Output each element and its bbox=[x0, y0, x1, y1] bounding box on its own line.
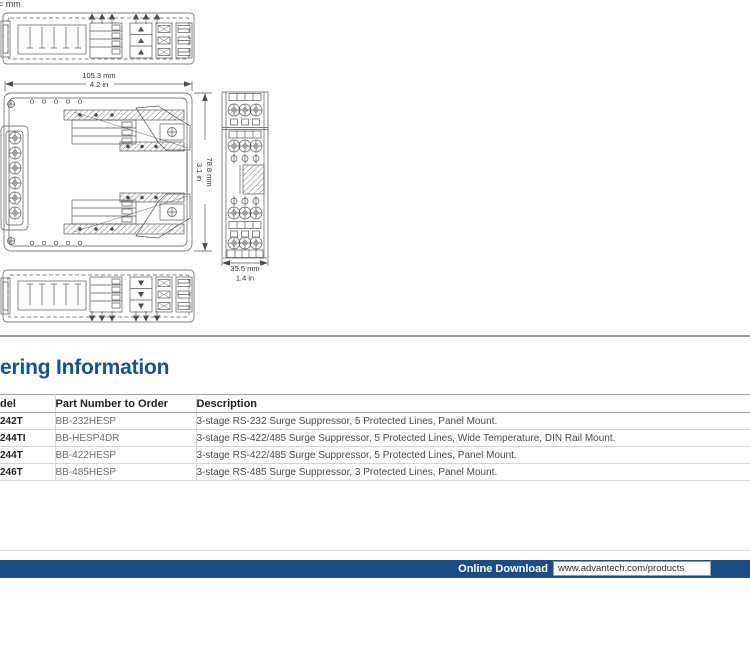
cell-description: 3-stage RS-422/485 Surge Suppressor, 5 P… bbox=[196, 447, 750, 464]
cell-model: 244TI bbox=[0, 430, 55, 447]
header-model: del bbox=[0, 395, 55, 413]
cell-model: 246T bbox=[0, 464, 55, 481]
cell-part: BB-485HESP bbox=[55, 464, 196, 481]
top-view-drawing bbox=[1, 13, 194, 64]
ordering-table: del Part Number to Order Description 242… bbox=[0, 394, 750, 481]
cell-part: BB-HESP4DR bbox=[55, 430, 196, 447]
datasheet-page: = mm bbox=[0, 0, 750, 650]
plan-view-drawing bbox=[1, 93, 192, 251]
table-header-row: del Part Number to Order Description bbox=[0, 395, 750, 413]
cell-model: 244T bbox=[0, 447, 55, 464]
depth-label-in: 1.4 in bbox=[236, 274, 254, 283]
table-row: 246T BB-485HESP 3-stage RS-485 Surge Sup… bbox=[0, 464, 750, 481]
cell-part: BB-232HESP bbox=[55, 413, 196, 430]
table-row: 242T BB-232HESP 3-stage RS-232 Surge Sup… bbox=[0, 413, 750, 430]
bottom-view-drawing bbox=[1, 270, 194, 322]
width-label-in: 4.2 in bbox=[90, 80, 108, 89]
cell-description: 3-stage RS-232 Surge Suppressor, 5 Prote… bbox=[196, 413, 750, 430]
table-row: 244TI BB-HESP4DR 3-stage RS-422/485 Surg… bbox=[0, 430, 750, 447]
download-url-box[interactable]: www.advantech.com/products bbox=[553, 561, 711, 576]
header-part-number: Part Number to Order bbox=[55, 395, 196, 413]
footer-separator-line bbox=[0, 550, 750, 551]
cell-part: BB-422HESP bbox=[55, 447, 196, 464]
ordering-heading: ering Information bbox=[0, 356, 169, 380]
footer-bar: Online Download www.advantech.com/produc… bbox=[0, 560, 750, 578]
depth-label-mm: 35.5 mm bbox=[230, 264, 259, 273]
online-download-label: Online Download bbox=[330, 560, 548, 578]
front-view-drawing bbox=[222, 92, 268, 258]
header-description: Description bbox=[196, 395, 750, 413]
section-divider bbox=[0, 335, 750, 337]
table-row: 244T BB-422HESP 3-stage RS-422/485 Surge… bbox=[0, 447, 750, 464]
depth-dimension: 35.5 mm 1.4 in bbox=[222, 259, 268, 283]
cell-description: 3-stage RS-485 Surge Suppressor, 3 Prote… bbox=[196, 464, 750, 481]
width-label-mm: 105.3 mm bbox=[82, 71, 115, 80]
height-label-mm: 78.8 mm bbox=[205, 157, 214, 186]
download-url-text[interactable]: www.advantech.com/products bbox=[554, 562, 710, 575]
technical-drawing: 105.3 mm 4.2 in 78.8 mm 3.1 in bbox=[0, 0, 300, 335]
height-label-in: 3.1 in bbox=[195, 163, 204, 181]
width-dimension: 105.3 mm 4.2 in bbox=[5, 71, 192, 91]
height-dimension: 78.8 mm 3.1 in bbox=[194, 93, 214, 251]
cell-description: 3-stage RS-422/485 Surge Suppressor, 5 P… bbox=[196, 430, 750, 447]
cell-model: 242T bbox=[0, 413, 55, 430]
